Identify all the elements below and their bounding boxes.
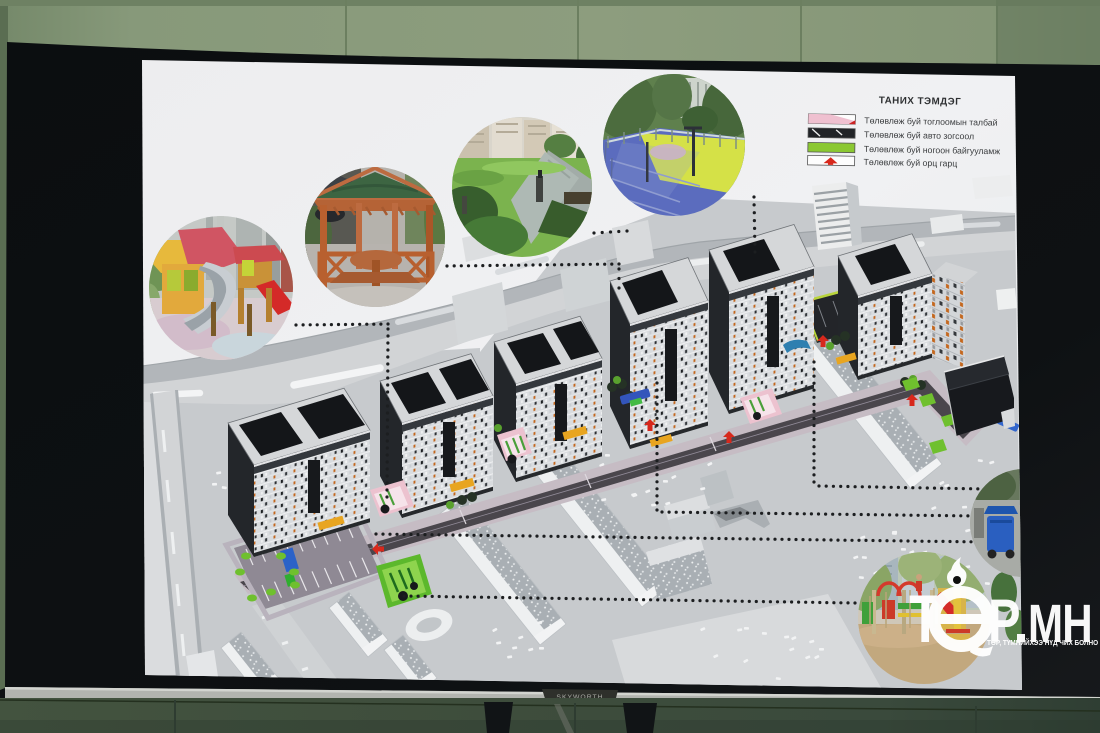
svg-text:ТӨР, ТҮМНИЙХЭЭ НҮД ЧИХ БОЛНО: ТӨР, ТҮМНИЙХЭЭ НҮД ЧИХ БОЛНО bbox=[987, 638, 1098, 647]
svg-text:ТАНИХ ТЭМДЭГ: ТАНИХ ТЭМДЭГ bbox=[879, 95, 962, 107]
svg-text:Төлөвлөж буй авто зогсоол: Төлөвлөж буй авто зогсоол bbox=[864, 129, 974, 141]
svg-text:Төлөвлөж буй орц гарц: Төлөвлөж буй орц гарц bbox=[864, 157, 958, 169]
